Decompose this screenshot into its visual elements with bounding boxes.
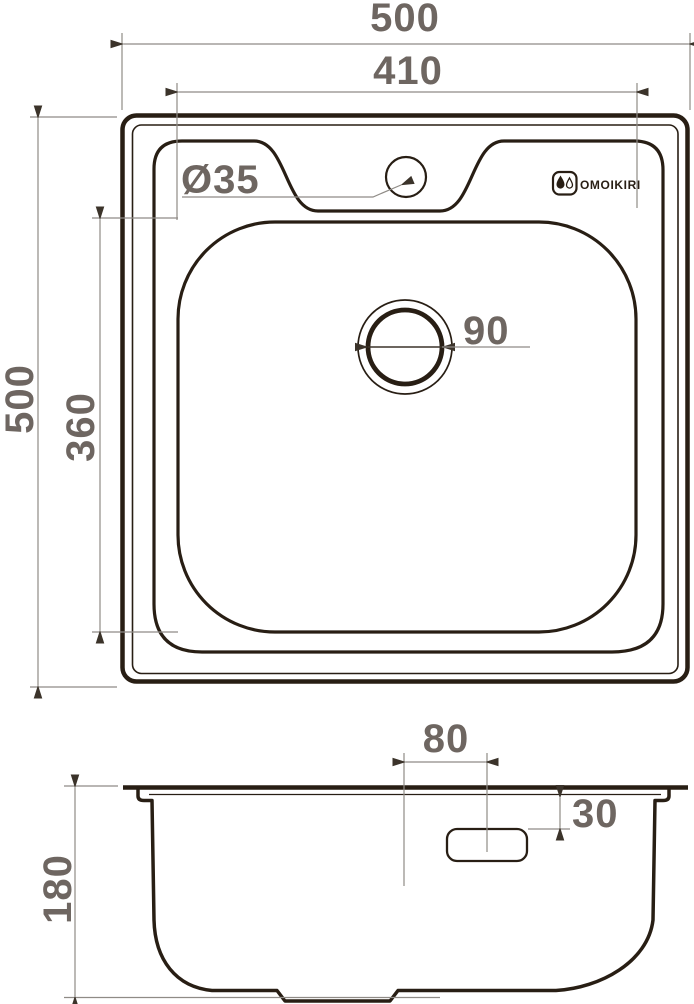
dim-label-bowl-width: 410: [373, 49, 443, 93]
side-view: 80 30 180: [36, 717, 688, 1001]
dim-label-bowl-depth: 180: [36, 854, 80, 924]
dim-bowl-height: 360: [59, 218, 178, 632]
dim-bowl-depth: 180: [36, 786, 440, 998]
sink-technical-drawing: 90 Ø35 OMOIKIRI 500 410: [0, 0, 694, 1004]
droplet-outline-icon: [567, 178, 573, 188]
brand-name: OMOIKIRI: [580, 178, 641, 192]
dim-label-bowl-height: 360: [59, 392, 103, 462]
dim-label-overflow-top-offset: 30: [572, 792, 619, 836]
dim-label-overflow-offset: 80: [423, 717, 470, 761]
drawing-canvas: 90 Ø35 OMOIKIRI 500 410: [0, 0, 694, 1004]
faucet-hole: [386, 157, 426, 197]
deck-contour: [154, 141, 663, 652]
dim-label-overall-width: 500: [370, 0, 440, 40]
dim-overflow-top-offset: 30: [528, 792, 619, 836]
bowl-contour: [178, 222, 636, 632]
drain-diameter-label: 90: [463, 309, 510, 353]
faucet-hole-label: Ø35: [181, 158, 260, 202]
droplet-filled-icon: [557, 176, 565, 189]
sink-inner-rim-line: [133, 125, 679, 674]
top-view: 90 Ø35 OMOIKIRI 500 410: [0, 0, 690, 687]
brand-logo: OMOIKIRI: [553, 172, 641, 195]
double-droplet-icon: [553, 172, 577, 195]
dim-label-overall-height: 500: [0, 364, 42, 434]
